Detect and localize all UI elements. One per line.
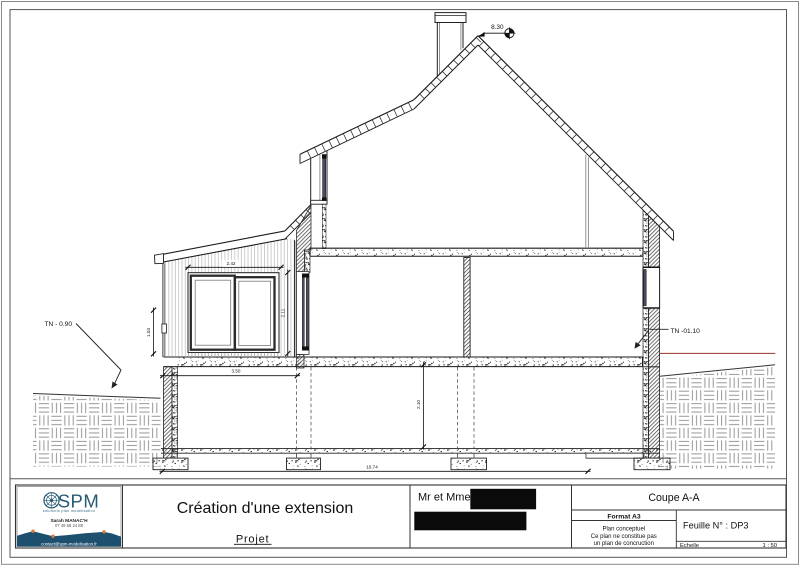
svg-text:contact@spm-modelisation.fr: contact@spm-modelisation.fr [41,542,97,547]
svg-text:2.42: 2.42 [227,261,236,266]
svg-text:1.04: 1.04 [146,328,151,337]
svg-text:Projet: Projet [236,533,270,545]
svg-text:Mr et Mme: Mr et Mme [418,492,471,504]
svg-text:07 49 68 24 88: 07 49 68 24 88 [55,523,84,528]
svg-text:2.10: 2.10 [416,400,421,409]
svg-text:Format A3: Format A3 [607,513,641,520]
svg-text:8.30: 8.30 [491,24,504,31]
svg-text:SPM: SPM [58,490,100,511]
svg-text:Coupe A-A: Coupe A-A [648,492,700,504]
svg-text:un plan de concruction: un plan de concruction [594,541,654,547]
svg-text:Création d'une extension: Création d'une extension [177,500,354,517]
svg-text:Ce plan ne constitue pas: Ce plan ne constitue pas [591,534,657,540]
svg-text:Feuille N° : DP3: Feuille N° : DP3 [683,520,748,530]
svg-text:2.11: 2.11 [280,308,285,317]
svg-text:3.50: 3.50 [232,369,241,374]
svg-text:solutions plan modelisation: solutions plan modelisation [43,509,95,513]
svg-text:TN - 0.90: TN - 0.90 [45,321,73,328]
svg-text:10.74: 10.74 [366,464,378,469]
svg-text:1 : 50: 1 : 50 [762,543,777,549]
svg-text:TN -01.10: TN -01.10 [671,328,701,335]
svg-text:Echelle: Echelle [680,543,699,549]
svg-text:Plan conceptuel: Plan conceptuel [602,527,645,533]
